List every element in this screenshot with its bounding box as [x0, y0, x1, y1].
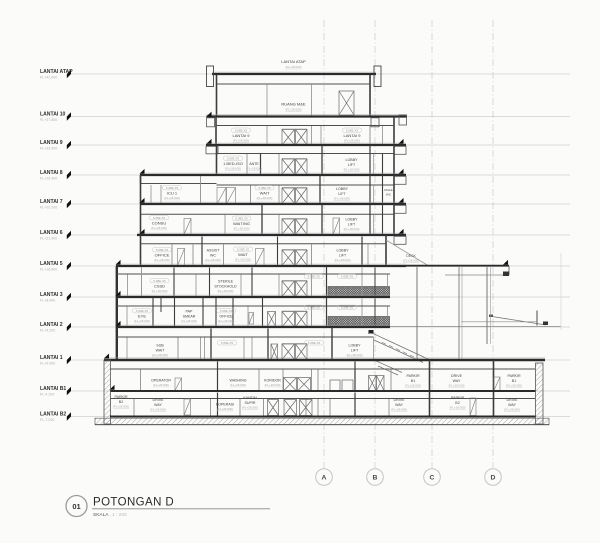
svg-text:MALE: MALE: [384, 188, 392, 192]
svg-text:5.08E.X5: 5.08E.X5: [136, 309, 149, 313]
svg-text:FL-7.000: FL-7.000: [40, 418, 54, 422]
svg-text:(FL+28.000): (FL+28.000): [405, 383, 421, 387]
svg-text:FL+42.000: FL+42.000: [40, 76, 57, 80]
svg-text:WAIT: WAIT: [238, 252, 248, 257]
svg-text:WAY: WAY: [508, 403, 516, 407]
svg-text:(FL+28.000): (FL+28.000): [233, 138, 249, 142]
svg-text:(FL+28.000): (FL+28.000): [225, 166, 241, 170]
svg-text:ANTE: ANTE: [249, 162, 259, 166]
svg-text:5.08E.X5: 5.08E.X5: [341, 306, 354, 310]
svg-text:(FL+28.000): (FL+28.000): [154, 258, 170, 262]
svg-text:5.08E.X5: 5.08E.X5: [153, 216, 166, 220]
svg-text:WASHING: WASHING: [229, 379, 246, 383]
svg-text:5.08E.X5: 5.08E.X5: [166, 186, 179, 190]
svg-text:B: B: [373, 475, 378, 482]
svg-text:(FL+28.000): (FL+28.000): [153, 383, 169, 387]
svg-text:(FL+28.000): (FL+28.000): [347, 353, 363, 357]
svg-text:LANTAI 8: LANTAI 8: [40, 170, 63, 176]
svg-text:LANTAI 6: LANTAI 6: [40, 230, 63, 236]
svg-text:DECK: DECK: [406, 254, 416, 258]
svg-text:EYE: EYE: [138, 314, 146, 319]
svg-text:DRIVE: DRIVE: [451, 374, 463, 378]
svg-text:LANTAI 9: LANTAI 9: [343, 133, 361, 138]
svg-text:(FL+28.000): (FL+28.000): [218, 319, 234, 323]
svg-text:5.08E.X5: 5.08E.X5: [153, 279, 166, 283]
svg-text:(FL+28.000): (FL+28.000): [205, 258, 221, 262]
svg-text:(FL+28.000): (FL+28.000): [246, 166, 262, 170]
svg-text:PARKIR: PARKIR: [451, 396, 465, 400]
svg-text:FL+33.600: FL+33.600: [40, 147, 57, 151]
svg-text:KANTIN: KANTIN: [243, 396, 257, 400]
svg-text:SMEAR: SMEAR: [183, 315, 196, 319]
svg-text:5.08E.X5: 5.08E.X5: [237, 247, 250, 251]
svg-text:LANTAI 2: LANTAI 2: [40, 322, 63, 328]
svg-text:LIFT: LIFT: [348, 163, 356, 167]
svg-text:LANTAI ATAP: LANTAI ATAP: [281, 59, 306, 64]
svg-text:5.08E.X5: 5.08E.X5: [221, 341, 234, 345]
svg-text:5.08E.X5: 5.08E.X5: [258, 186, 271, 190]
svg-text:LIFT: LIFT: [339, 254, 347, 258]
svg-text:LIFT: LIFT: [351, 349, 359, 353]
svg-text:FL+8.400: FL+8.400: [40, 299, 55, 303]
svg-text:5.08E.X5: 5.08E.X5: [308, 341, 321, 345]
svg-text:WAY: WAY: [154, 403, 162, 407]
svg-text:(FL+28.000): (FL+28.000): [113, 404, 129, 408]
svg-text:(FL+28.000): (FL+28.000): [164, 196, 180, 200]
svg-text:5.08E.X5: 5.08E.X5: [308, 275, 321, 279]
svg-text:WAY: WAY: [395, 403, 403, 407]
svg-text:CSSD: CSSD: [154, 284, 165, 289]
svg-text:FL+29.400: FL+29.400: [40, 177, 57, 181]
svg-text:(FL+28.000): (FL+28.000): [344, 227, 360, 231]
svg-text:OPERATOR: OPERATOR: [151, 379, 171, 383]
svg-text:5.08E.X5: 5.08E.X5: [235, 128, 248, 132]
svg-text:(FL+28.000): (FL+28.000): [334, 196, 350, 200]
svg-text:PARKIR: PARKIR: [406, 374, 420, 378]
svg-text:SKALA: SKALA: [93, 512, 109, 518]
svg-text:ASSIST: ASSIST: [207, 249, 221, 253]
svg-text:(FL+28.000): (FL+28.000): [230, 383, 246, 387]
svg-text:FL+0.000: FL+0.000: [40, 362, 55, 366]
svg-text:(FL+28.000): (FL+28.000): [234, 226, 250, 230]
svg-text:(FL+28.000): (FL+28.000): [150, 407, 166, 411]
svg-text:B1: B1: [512, 379, 516, 383]
svg-text:B2: B2: [455, 401, 459, 405]
svg-text:FL+16.800: FL+16.800: [40, 268, 57, 272]
svg-text:B1: B1: [411, 379, 415, 383]
svg-text:LOBBY: LOBBY: [346, 218, 359, 222]
svg-text:FL+21.000: FL+21.000: [40, 237, 57, 241]
svg-text:D: D: [491, 475, 496, 482]
svg-text:(FL+28.000): (FL+28.000): [151, 226, 167, 230]
svg-text:SUB: SUB: [156, 344, 164, 348]
svg-text:5.08E.X5: 5.08E.X5: [156, 248, 169, 252]
svg-text:OFFICE: OFFICE: [155, 253, 170, 258]
svg-text:DRIVE: DRIVE: [507, 398, 519, 402]
svg-text:5.08E.X5: 5.08E.X5: [227, 156, 240, 160]
svg-text:C: C: [430, 475, 435, 482]
svg-text:FL+4.200: FL+4.200: [40, 329, 55, 333]
svg-text:SUPIR: SUPIR: [245, 401, 256, 405]
svg-text:KORIDOR: KORIDOR: [264, 379, 281, 383]
svg-text:LANTAI 1: LANTAI 1: [40, 355, 63, 361]
svg-text:1 BED-ISO: 1 BED-ISO: [223, 161, 243, 166]
svg-text:DRIVE: DRIVE: [394, 398, 406, 402]
svg-text:FL+25.200: FL+25.200: [40, 206, 57, 210]
svg-text:LOBBY: LOBBY: [349, 344, 362, 348]
svg-text:(FL+28.000): (FL+28.000): [181, 319, 197, 323]
svg-text:1 : 200: 1 : 200: [112, 512, 127, 518]
svg-text:(FL+28.000): (FL+28.000): [217, 407, 233, 411]
svg-text:(FL+28.000): (FL+28.000): [504, 407, 520, 411]
svg-text:LIFT: LIFT: [338, 192, 346, 196]
svg-text:DRIVE: DRIVE: [153, 398, 165, 402]
svg-text:WC: WC: [386, 193, 392, 197]
svg-text:(FL+28.000): (FL+28.000): [286, 108, 302, 112]
svg-text:PARKIR: PARKIR: [507, 374, 521, 378]
svg-text:(FL+28.000): (FL+28.000): [218, 289, 234, 293]
svg-text:(FL+28.000): (FL+28.000): [286, 65, 302, 69]
svg-text:LIFT: LIFT: [348, 223, 356, 227]
svg-text:(FL+28.000): (FL+28.000): [265, 383, 281, 387]
svg-text:(FL+28.000): (FL+28.000): [152, 353, 168, 357]
svg-text:5.08E.X5: 5.08E.X5: [220, 309, 233, 313]
svg-text:STERILE: STERILE: [218, 280, 234, 284]
svg-text:5.08E.X5: 5.08E.X5: [235, 216, 248, 220]
svg-text:LANTAI 7: LANTAI 7: [40, 199, 63, 205]
svg-text:FL-4.200: FL-4.200: [40, 393, 54, 397]
svg-text:01: 01: [72, 502, 80, 511]
svg-text:5.08E.X5: 5.08E.X5: [346, 128, 359, 132]
svg-text:5.08E.X5: 5.08E.X5: [341, 275, 354, 279]
svg-text:KOPERASI: KOPERASI: [216, 403, 234, 407]
svg-text:(FL+28.000): (FL+28.000): [449, 383, 465, 387]
svg-text:FL+37.800: FL+37.800: [40, 118, 57, 122]
svg-text:WAITING: WAITING: [233, 221, 250, 226]
svg-text:(FL+28.000): (FL+28.000): [257, 196, 273, 200]
svg-text:(FL+28.000): (FL+28.000): [134, 319, 150, 323]
svg-text:5.08E.X5: 5.08E.X5: [308, 306, 321, 310]
svg-text:OFFICE: OFFICE: [219, 315, 233, 319]
svg-text:LOBBY: LOBBY: [337, 249, 350, 253]
svg-text:(FL+28.000): (FL+28.000): [344, 138, 360, 142]
svg-text:WC: WC: [210, 254, 216, 258]
svg-text:LANTAI B2: LANTAI B2: [40, 411, 66, 417]
svg-text:POTONGAN D: POTONGAN D: [93, 497, 174, 509]
svg-text:PAP: PAP: [186, 310, 194, 314]
svg-text:WAIT: WAIT: [260, 191, 270, 196]
svg-text:(FL+28.000): (FL+28.000): [335, 258, 351, 262]
svg-text:CONSU: CONSU: [152, 221, 167, 226]
svg-text:B2: B2: [119, 400, 123, 404]
svg-text:WAIT: WAIT: [156, 349, 166, 353]
svg-text:ICU 1: ICU 1: [167, 191, 178, 196]
svg-text:(FL+28.000): (FL+28.000): [391, 407, 407, 411]
svg-text:(FL+28.000): (FL+28.000): [242, 405, 258, 409]
svg-text:(FL+28.000): (FL+28.000): [152, 289, 168, 293]
svg-text:LANTAI 5: LANTAI 5: [40, 261, 63, 267]
svg-text:(FL+28.000): (FL+28.000): [506, 383, 522, 387]
svg-text:(FL+28.000): (FL+28.000): [403, 259, 419, 263]
svg-text:RUANG M&E: RUANG M&E: [281, 102, 306, 107]
svg-text:LOBBY: LOBBY: [336, 187, 349, 191]
svg-text:LANTAI 10: LANTAI 10: [40, 111, 66, 117]
svg-text:PARKIR: PARKIR: [114, 395, 128, 399]
svg-text:LANTAI 9: LANTAI 9: [40, 140, 63, 146]
svg-text:LANTAI 3: LANTAI 3: [40, 292, 63, 298]
svg-text:LANTAI B1: LANTAI B1: [40, 386, 66, 392]
svg-text:A: A: [322, 475, 327, 482]
svg-text:LOBBY: LOBBY: [346, 158, 359, 162]
svg-text:LANTAI 9: LANTAI 9: [232, 133, 250, 138]
svg-text:(FL+28.000): (FL+28.000): [344, 167, 360, 171]
svg-text:(FL+28.000): (FL+28.000): [235, 257, 251, 261]
svg-text:(FL+28.000): (FL+28.000): [450, 405, 466, 409]
svg-text:WAY: WAY: [453, 379, 461, 383]
svg-text:STOCKHOLD: STOCKHOLD: [214, 285, 237, 289]
